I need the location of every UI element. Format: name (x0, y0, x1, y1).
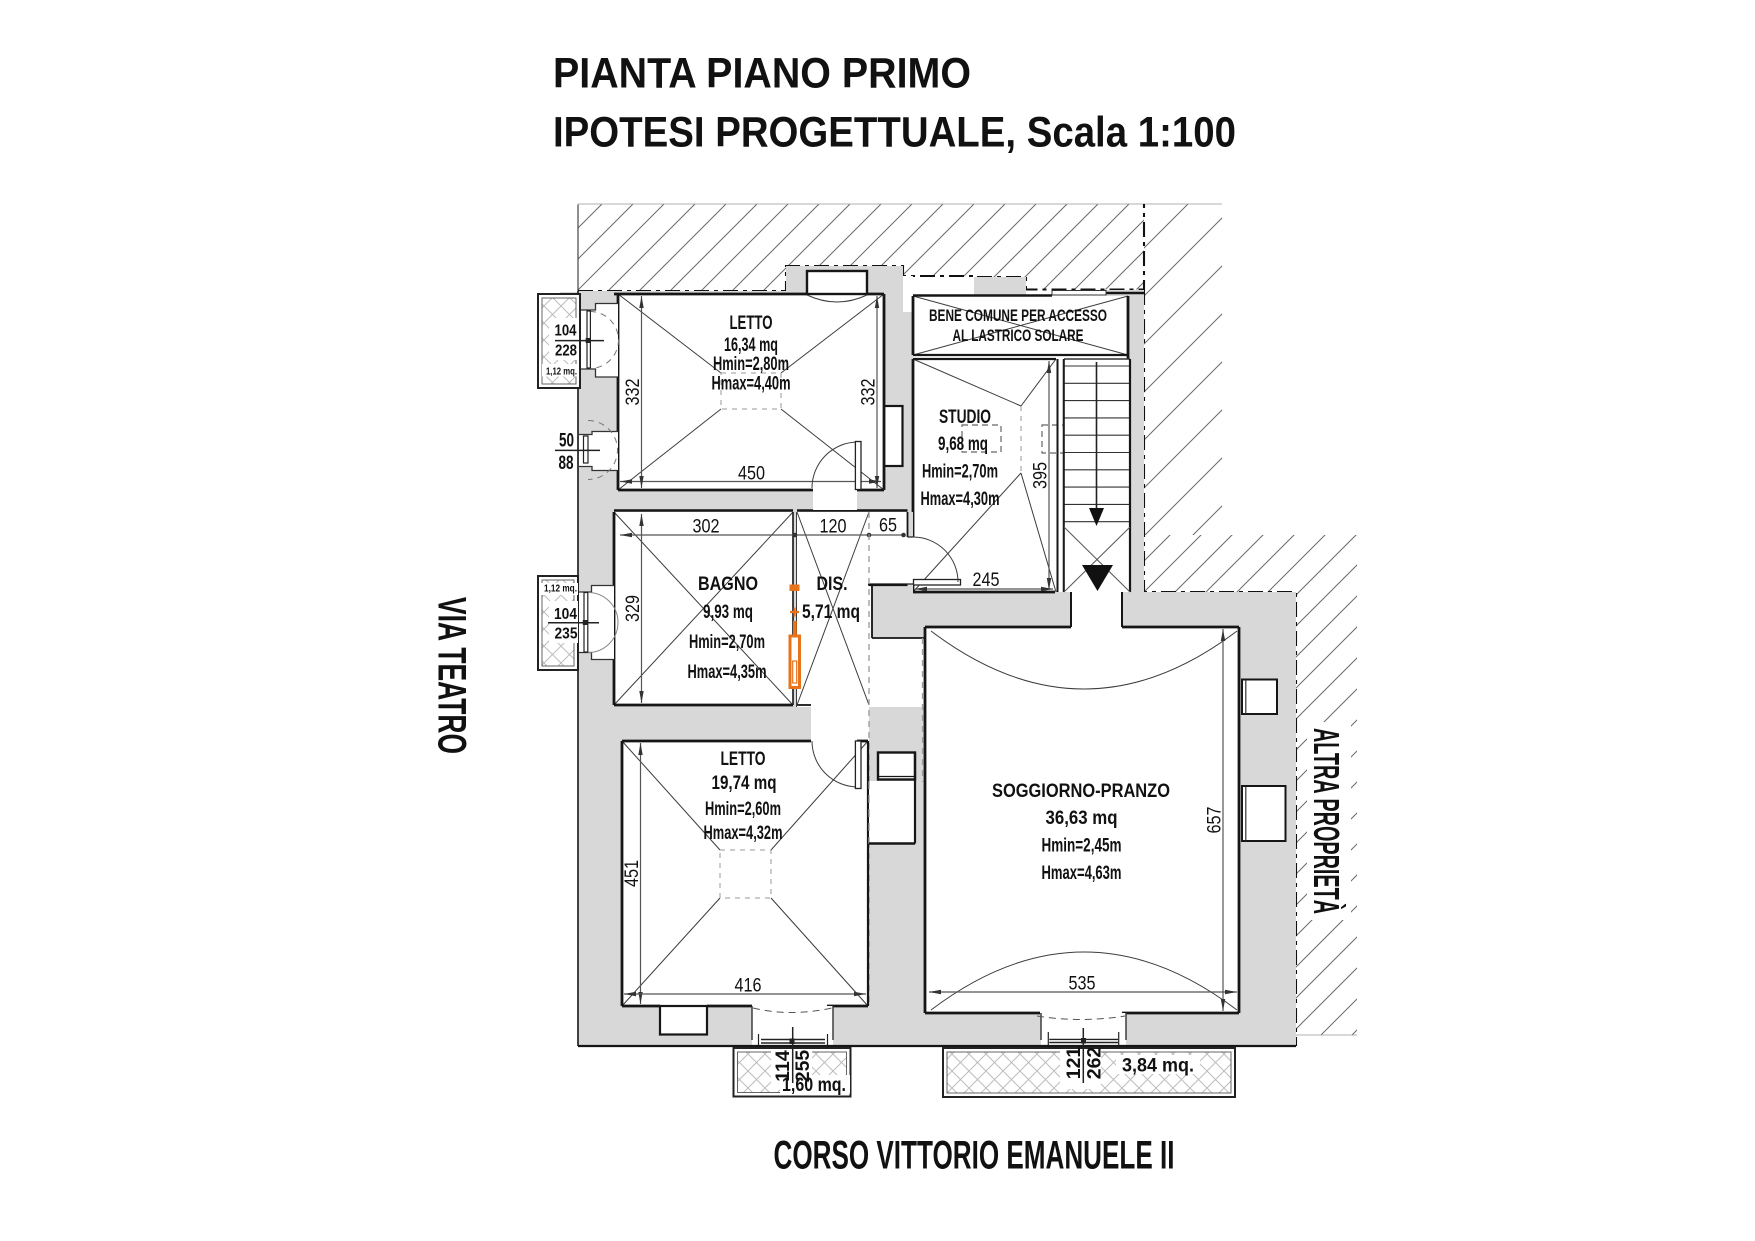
svg-text:332: 332 (622, 379, 644, 406)
svg-text:535: 535 (1069, 973, 1096, 995)
svg-text:Hmin=2,80m: Hmin=2,80m (713, 354, 789, 375)
svg-text:1,12 mq.: 1,12 mq. (544, 583, 577, 595)
svg-text:ALTRA PROPRIETÀ: ALTRA PROPRIETÀ (1306, 728, 1347, 914)
svg-text:19,74 mq: 19,74 mq (712, 773, 777, 794)
svg-text:VIA TEATRO: VIA TEATRO (430, 597, 474, 754)
svg-text:SOGGIORNO-PRANZO: SOGGIORNO-PRANZO (992, 780, 1170, 802)
svg-text:BENE COMUNE PER ACCESSO: BENE COMUNE PER ACCESSO (929, 306, 1107, 325)
svg-text:1,12 mq.: 1,12 mq. (546, 366, 577, 378)
svg-text:Hmax=4,35m: Hmax=4,35m (688, 662, 767, 683)
svg-text:88: 88 (559, 453, 574, 474)
svg-text:CORSO VITTORIO EMANUELE II: CORSO VITTORIO EMANUELE II (774, 1134, 1175, 1178)
svg-text:416: 416 (735, 975, 762, 997)
svg-text:BAGNO: BAGNO (698, 574, 758, 595)
svg-text:Hmin=2,60m: Hmin=2,60m (705, 799, 781, 820)
svg-text:50: 50 (559, 431, 574, 452)
svg-text:329: 329 (622, 595, 644, 622)
svg-text:450: 450 (738, 463, 765, 485)
svg-text:Hmin=2,45m: Hmin=2,45m (1042, 835, 1122, 857)
svg-text:657: 657 (1204, 807, 1226, 834)
svg-text:114: 114 (772, 1050, 794, 1082)
svg-text:262: 262 (1084, 1047, 1106, 1080)
svg-text:104: 104 (555, 323, 577, 340)
svg-text:255: 255 (792, 1050, 814, 1083)
svg-text:16,34 mq: 16,34 mq (724, 335, 778, 356)
svg-text:451: 451 (621, 860, 643, 887)
svg-text:IPOTESI PROGETTUALE, Scala 1:1: IPOTESI PROGETTUALE, Scala 1:100 (553, 109, 1236, 157)
svg-text:DIS.: DIS. (817, 574, 848, 595)
svg-text:302: 302 (693, 516, 720, 538)
svg-text:3,84 mq.: 3,84 mq. (1122, 1056, 1194, 1077)
svg-text:Hmax=4,40m: Hmax=4,40m (712, 374, 791, 395)
svg-text:LETTO: LETTO (730, 313, 773, 334)
svg-text:104: 104 (554, 606, 577, 623)
svg-text:Hmin=2,70m: Hmin=2,70m (922, 462, 998, 483)
svg-text:120: 120 (820, 516, 847, 538)
svg-text:Hmax=4,32m: Hmax=4,32m (704, 823, 783, 844)
svg-text:STUDIO: STUDIO (939, 407, 991, 428)
svg-text:9,93 mq: 9,93 mq (703, 602, 753, 623)
svg-text:332: 332 (858, 379, 880, 406)
svg-text:Hmin=2,70m: Hmin=2,70m (689, 632, 765, 653)
svg-text:245: 245 (973, 569, 1000, 591)
svg-text:9,68 mq: 9,68 mq (938, 434, 988, 455)
svg-text:65: 65 (879, 515, 897, 537)
svg-text:235: 235 (555, 626, 578, 643)
svg-text:Hmax=4,63m: Hmax=4,63m (1042, 862, 1122, 884)
svg-text:395: 395 (1030, 462, 1052, 489)
svg-text:Hmax=4,30m: Hmax=4,30m (921, 489, 1000, 510)
svg-text:36,63 mq: 36,63 mq (1046, 807, 1118, 829)
svg-text:5,71 mq: 5,71 mq (802, 602, 860, 623)
svg-text:PIANTA PIANO PRIMO: PIANTA PIANO PRIMO (553, 50, 971, 98)
svg-text:LETTO: LETTO (721, 749, 766, 770)
svg-text:121: 121 (1063, 1047, 1085, 1080)
svg-text:228: 228 (555, 343, 577, 360)
svg-text:AL LASTRICO SOLARE: AL LASTRICO SOLARE (953, 326, 1084, 345)
